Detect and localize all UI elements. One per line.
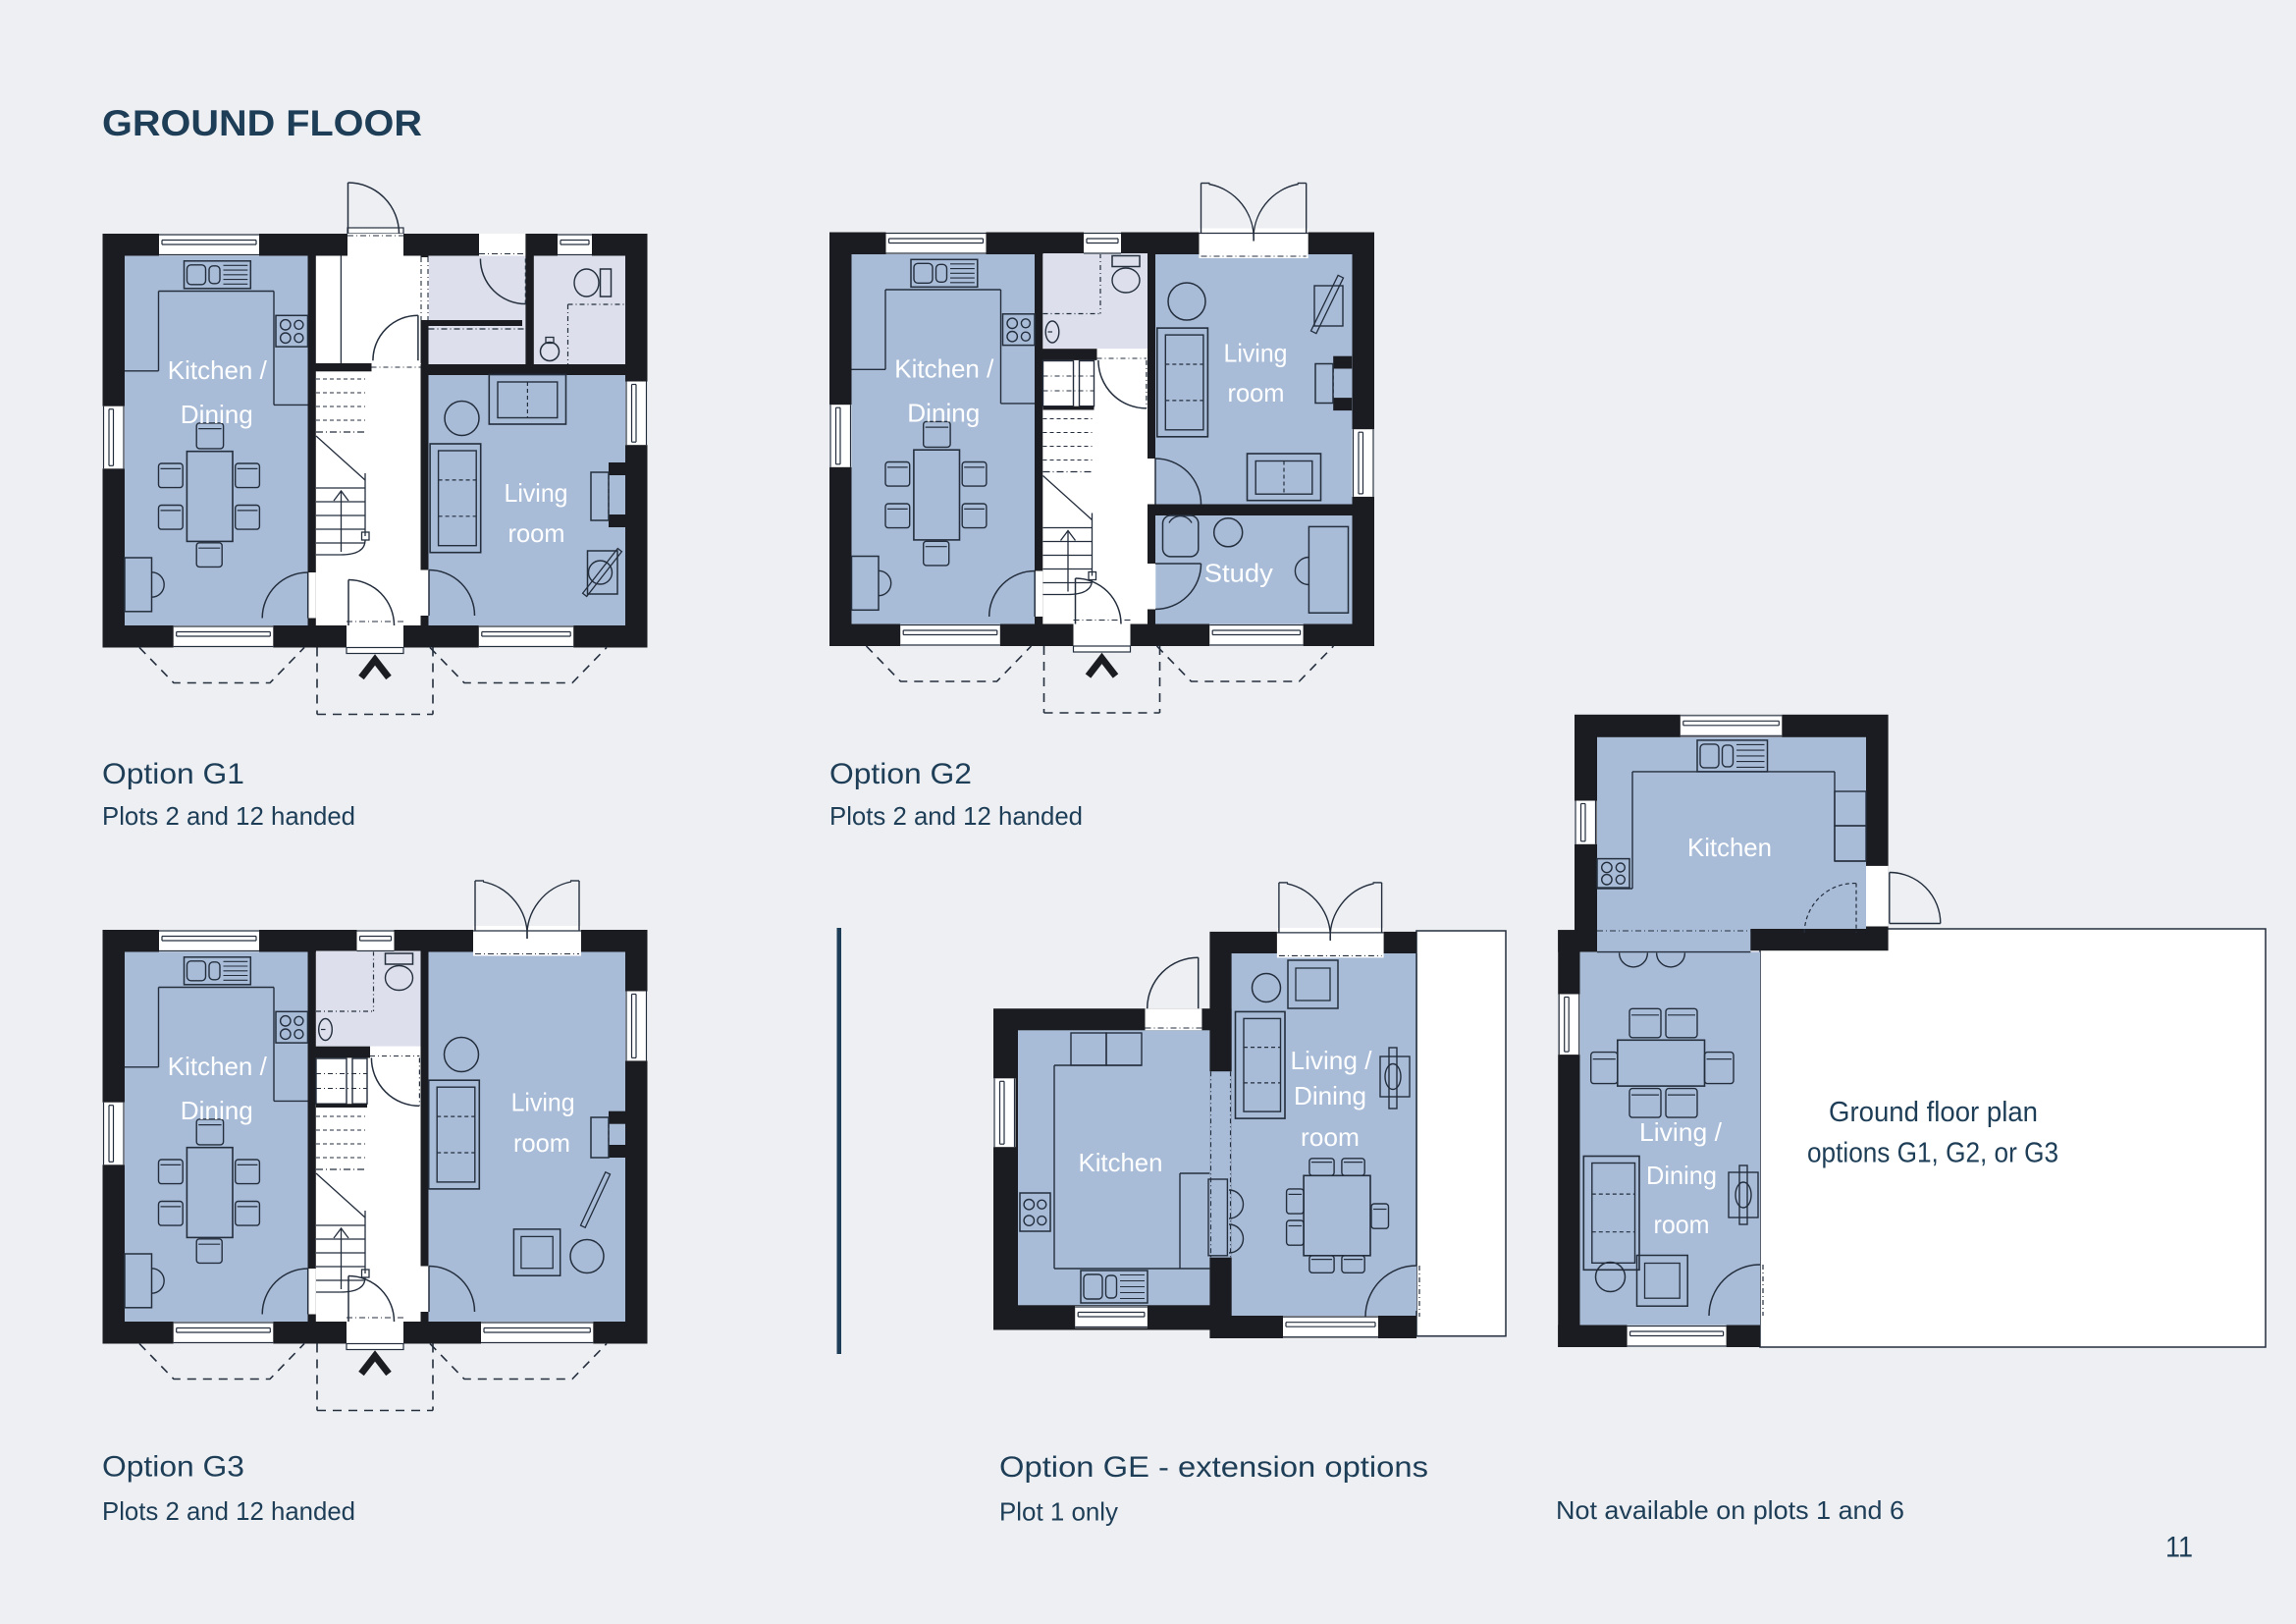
svg-text:Living: Living [511, 1088, 575, 1117]
svg-text:room: room [1228, 378, 1285, 407]
svg-text:options G1, G2, or G3: options G1, G2, or G3 [1807, 1138, 2058, 1169]
svg-text:Dining: Dining [907, 399, 980, 428]
svg-text:Dining: Dining [181, 400, 253, 429]
svg-text:Study: Study [1204, 559, 1273, 588]
svg-text:Option G2: Option G2 [829, 758, 972, 790]
svg-text:Kitchen /: Kitchen / [168, 355, 268, 385]
svg-text:Kitchen /: Kitchen / [894, 354, 994, 384]
svg-text:Kitchen /: Kitchen / [168, 1052, 268, 1081]
svg-text:Living /: Living / [1639, 1117, 1723, 1147]
svg-text:Living: Living [505, 478, 568, 508]
svg-text:Kitchen: Kitchen [1687, 833, 1772, 862]
svg-text:Dining: Dining [1646, 1161, 1717, 1190]
svg-text:Not available on plots 1 and 6: Not available on plots 1 and 6 [1556, 1495, 1904, 1525]
svg-text:Living /: Living / [1291, 1046, 1373, 1075]
svg-text:Plots 2 and 12 handed: Plots 2 and 12 handed [102, 1496, 355, 1526]
svg-text:Dining: Dining [1294, 1081, 1366, 1110]
svg-text:Option G3: Option G3 [102, 1451, 244, 1484]
svg-text:GROUND FLOOR: GROUND FLOOR [102, 103, 422, 143]
svg-text:11: 11 [2165, 1532, 2193, 1564]
svg-text:room: room [1654, 1210, 1710, 1239]
svg-text:room: room [508, 518, 565, 548]
svg-text:Plots 2 and 12 handed: Plots 2 and 12 handed [829, 801, 1083, 831]
svg-text:Option G1: Option G1 [102, 758, 244, 790]
svg-text:Living: Living [1224, 339, 1288, 368]
svg-text:Plot 1 only: Plot 1 only [999, 1497, 1118, 1527]
svg-text:Option GE - extension options: Option GE - extension options [999, 1451, 1428, 1484]
svg-text:Plots 2 and 12 handed: Plots 2 and 12 handed [102, 801, 355, 831]
svg-text:Kitchen: Kitchen [1079, 1148, 1163, 1177]
svg-text:Ground floor plan: Ground floor plan [1829, 1097, 2038, 1128]
svg-text:Dining: Dining [181, 1096, 253, 1125]
svg-text:room: room [1301, 1122, 1360, 1152]
svg-text:room: room [513, 1128, 570, 1158]
